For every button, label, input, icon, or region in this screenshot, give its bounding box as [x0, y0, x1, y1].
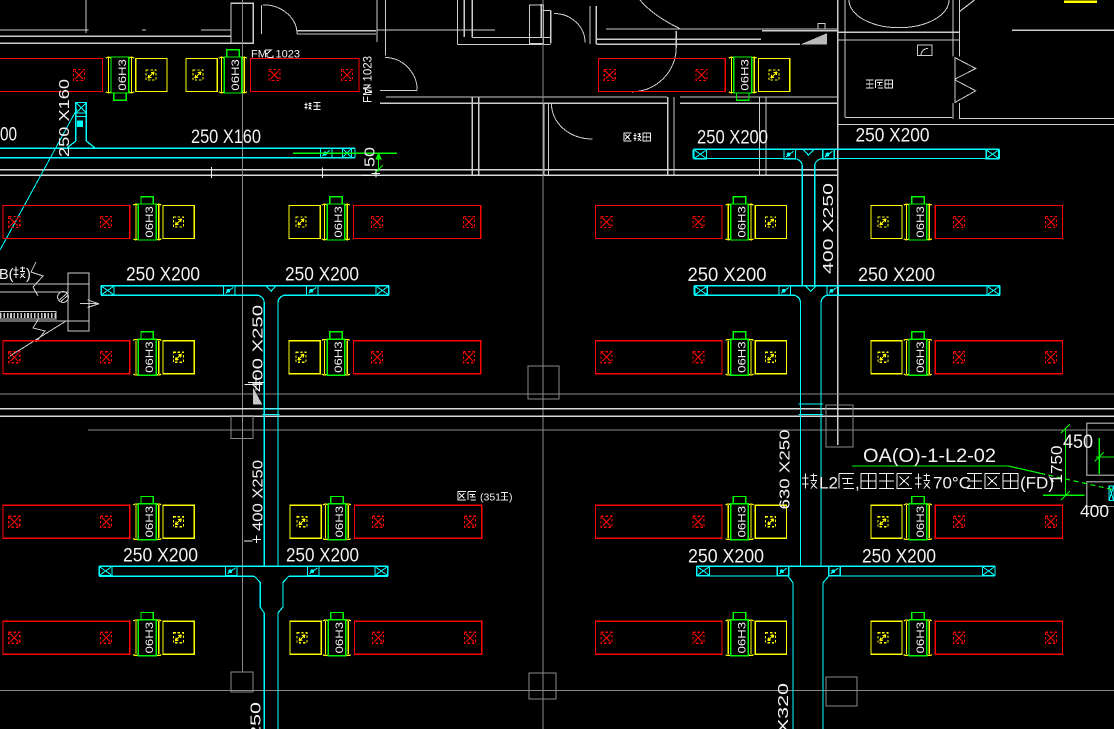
svg-text:250 X200: 250 X200	[286, 545, 359, 567]
svg-text:400 X250: 400 X250	[250, 305, 267, 392]
svg-text:250 X160: 250 X160	[56, 79, 73, 157]
svg-text:250 X200: 250 X200	[858, 264, 935, 286]
svg-text:FM: FM	[251, 49, 267, 61]
svg-text:250 X160: 250 X160	[191, 126, 261, 148]
svg-text:250 X200: 250 X200	[688, 546, 764, 568]
svg-text:250 X200: 250 X200	[862, 546, 936, 568]
svg-text:): )	[509, 492, 513, 504]
svg-text:630 X320: 630 X320	[775, 683, 792, 729]
svg-text:250 X200: 250 X200	[856, 125, 930, 147]
svg-text:250 X200: 250 X200	[123, 545, 198, 567]
svg-text:1023: 1023	[276, 49, 300, 61]
svg-text:1750: 1750	[1049, 445, 1066, 483]
svg-text:250 X200: 250 X200	[285, 264, 359, 286]
svg-text:450: 450	[1063, 432, 1093, 453]
svg-text:OA(O)-1-L2-02: OA(O)-1-L2-02	[863, 445, 996, 467]
svg-text:B(: B(	[0, 267, 14, 283]
svg-text:250 X200: 250 X200	[697, 127, 768, 149]
svg-text:400: 400	[1080, 501, 1109, 521]
svg-text:400 X250: 400 X250	[250, 460, 267, 531]
svg-text:70°C: 70°C	[933, 474, 971, 493]
svg-text:,: ,	[855, 474, 860, 493]
svg-text:06H3: 06H3	[230, 59, 242, 90]
svg-text:1023: 1023	[363, 56, 375, 82]
svg-text:L2: L2	[819, 474, 838, 493]
svg-text:250 X200: 250 X200	[126, 264, 200, 286]
svg-text:400 X250: 400 X250	[820, 183, 837, 274]
svg-text:): )	[26, 267, 31, 283]
svg-text:400 X250: 400 X250	[248, 702, 265, 729]
svg-text:630 X250: 630 X250	[777, 430, 794, 510]
svg-text:50: 50	[362, 147, 379, 167]
svg-text:(351: (351	[480, 492, 501, 504]
svg-text:250 X200: 250 X200	[688, 264, 767, 286]
svg-text:00: 00	[0, 124, 17, 146]
